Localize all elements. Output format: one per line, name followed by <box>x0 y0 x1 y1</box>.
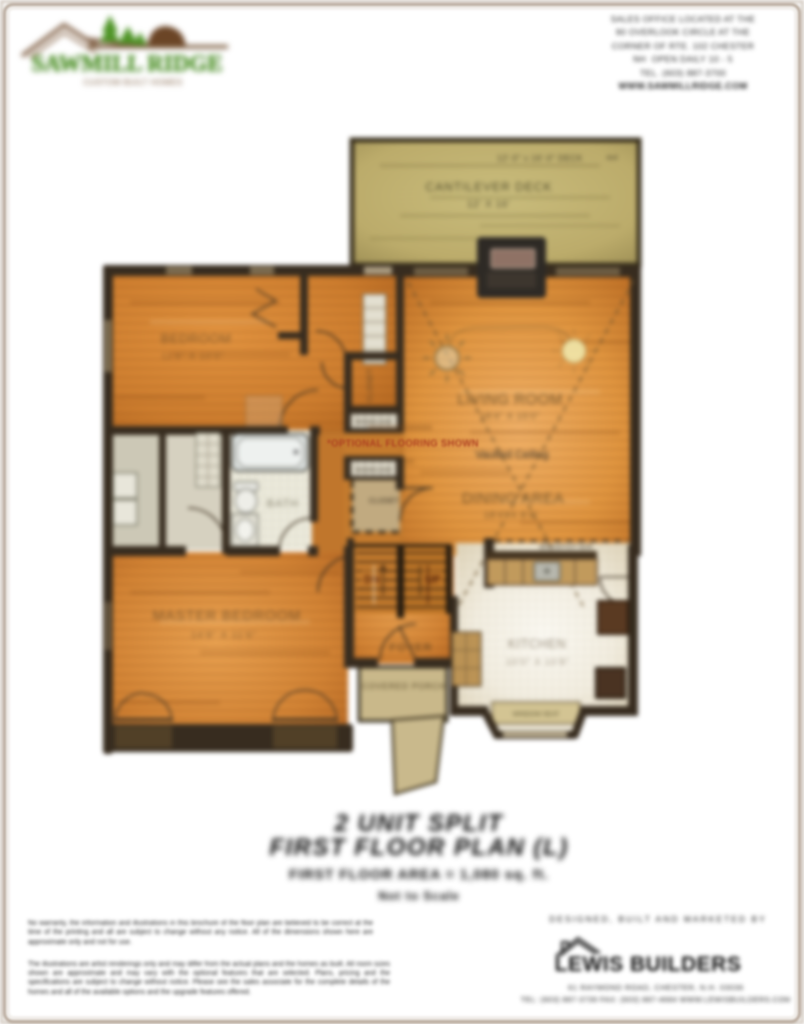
svg-text:12' X 16': 12' X 16' <box>467 199 510 209</box>
svg-text:BEDROOM: BEDROOM <box>161 331 232 346</box>
svg-text:MASTER BEDROOM: MASTER BEDROOM <box>153 607 302 623</box>
svg-text:DN: DN <box>364 574 380 586</box>
svg-text:BREAKFAST BAR: BREAKFAST BAR <box>539 544 593 551</box>
svg-text:LIVING ROOM: LIVING ROOM <box>457 391 563 408</box>
svg-text:BOOKCASE: BOOKCASE <box>356 467 393 474</box>
svg-text:COVERED PORCH: COVERED PORCH <box>362 682 446 691</box>
svg-text:10'0" X 10'8": 10'0" X 10'8" <box>506 657 570 667</box>
svg-text:KITCHEN: KITCHEN <box>508 637 566 651</box>
svg-text:FOYER: FOYER <box>390 642 433 654</box>
svg-text:CLOSET: CLOSET <box>367 368 374 402</box>
svg-text:18'4" X 8'4": 18'4" X 8'4" <box>484 510 538 521</box>
svg-text:11'6" X 10'0": 11'6" X 10'0" <box>161 351 224 361</box>
svg-text:14'8" X 11'6": 14'8" X 11'6" <box>191 630 257 641</box>
svg-text:DINING AREA: DINING AREA <box>462 490 564 507</box>
svg-text:4x4: 4x4 <box>606 155 617 162</box>
svg-text:Vaulted Ceiling: Vaulted Ceiling <box>475 449 548 461</box>
svg-text:18'4" X 15'0": 18'4" X 15'0" <box>480 411 540 422</box>
svg-text:BOOKCASE: BOOKCASE <box>356 419 393 426</box>
svg-text:CANTILEVER DECK: CANTILEVER DECK <box>425 180 552 194</box>
svg-text:TEL: (603) 887-3739 FAX: (603: TEL: (603) 887-3739 FAX: (603) 887-4684 … <box>521 995 790 1004</box>
svg-text:BATH: BATH <box>267 498 300 510</box>
svg-text:61 RAYMOND ROAD, CHESTER, N.H.: 61 RAYMOND ROAD, CHESTER, N.H. 03036 <box>568 983 744 992</box>
svg-text:LEWIS BUILDERS: LEWIS BUILDERS <box>555 953 742 976</box>
svg-text:WINDOW SEAT: WINDOW SEAT <box>513 711 560 718</box>
svg-text:CLOSET: CLOSET <box>369 496 399 505</box>
svg-text:12'-0" x 16'-0" DECK: 12'-0" x 16'-0" DECK <box>497 154 583 163</box>
